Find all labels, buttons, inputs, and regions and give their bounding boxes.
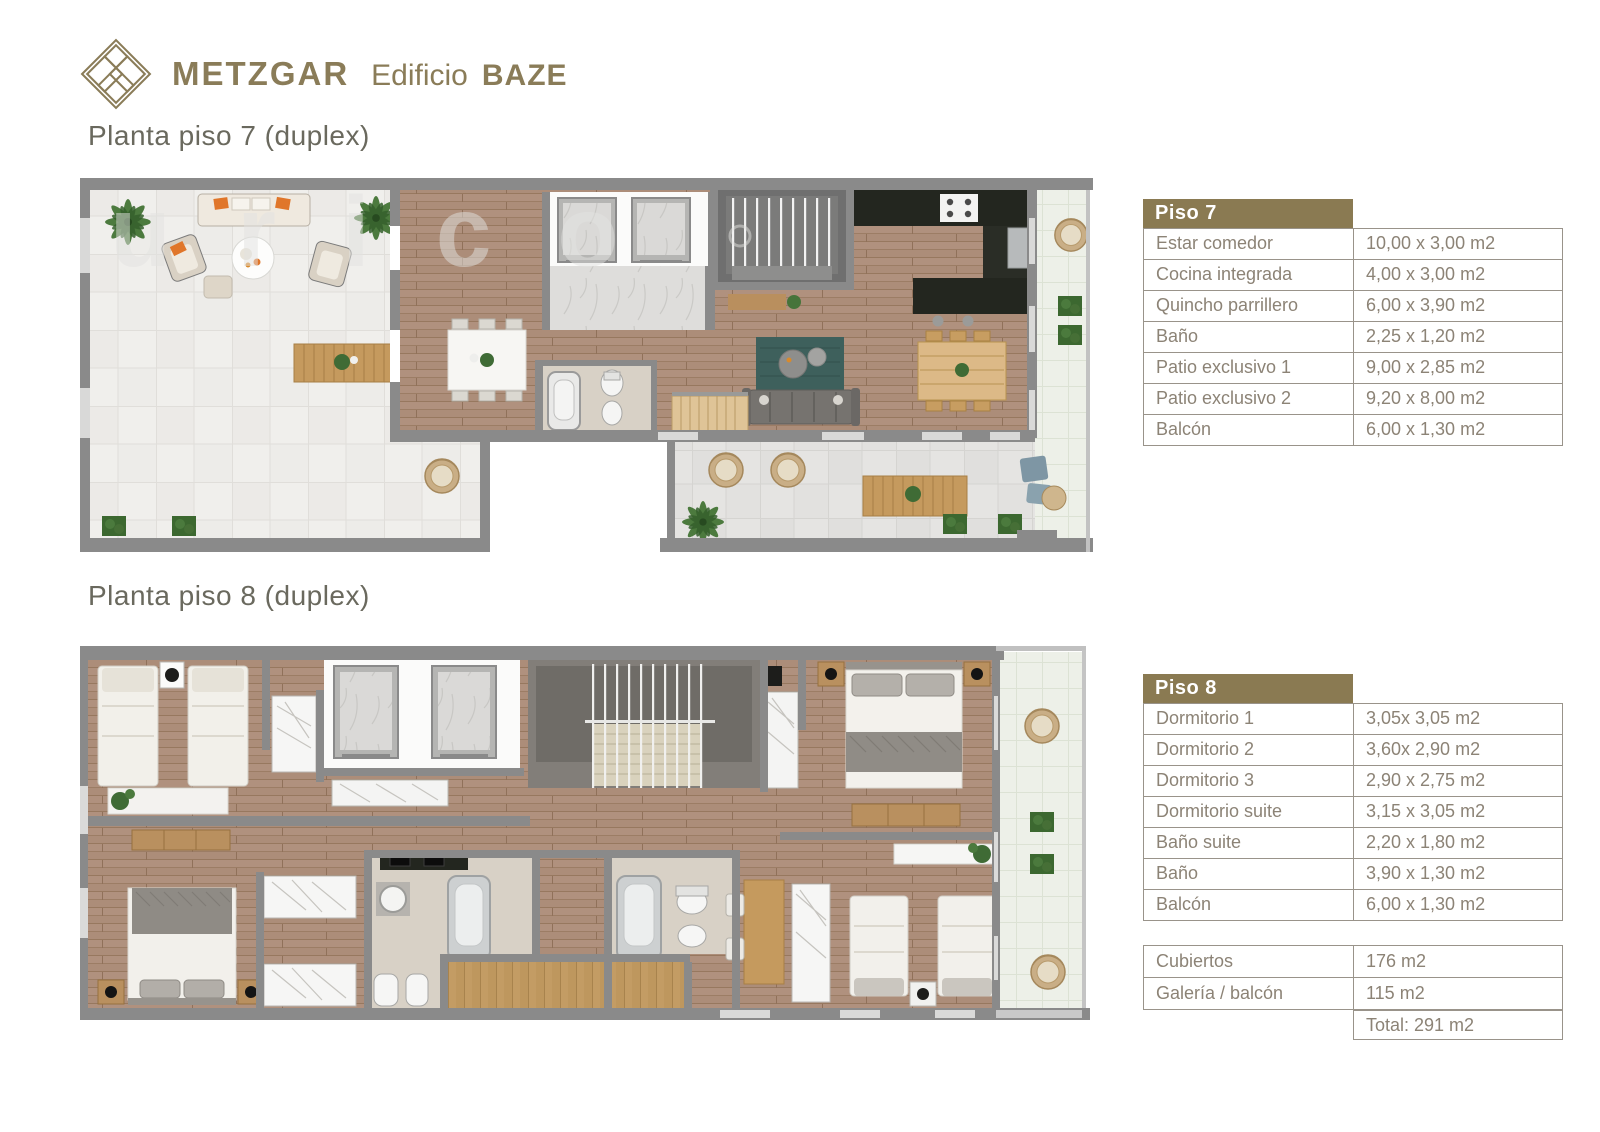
table-row: Patio exclusivo 2 9,20 x 8,00 m2 (1144, 384, 1562, 415)
summary-label: Cubiertos (1144, 946, 1354, 977)
room-label: Dormitorio suite (1144, 797, 1354, 827)
room-label: Estar comedor (1144, 229, 1354, 259)
room-size: 3,05x 3,05 m2 (1354, 704, 1562, 734)
room-size: 9,20 x 8,00 m2 (1354, 384, 1562, 414)
table-row: Baño 3,90 x 1,30 m2 (1144, 859, 1562, 890)
room-size: 3,90 x 1,30 m2 (1354, 859, 1562, 889)
closet-under-core (332, 780, 448, 806)
room-label: Dormitorio 3 (1144, 766, 1354, 796)
room-size: 3,60x 2,90 m2 (1354, 735, 1562, 765)
brochure-page: METZGAR Edificio BAZE Planta piso 7 (dup… (0, 0, 1600, 1132)
room-size: 2,20 x 1,80 m2 (1354, 828, 1562, 858)
table-row: Patio exclusivo 1 9,00 x 2,85 m2 (1144, 353, 1562, 384)
table-row: Dormitorio 3 2,90 x 2,75 m2 (1144, 766, 1562, 797)
room-size: 2,25 x 1,20 m2 (1354, 322, 1562, 352)
indoor-dining-table-white (448, 319, 526, 401)
summary-table: Cubiertos 176 m2 Galería / balcón 115 m2… (1143, 945, 1563, 1040)
table-row: Dormitorio 2 3,60x 2,90 m2 (1144, 735, 1562, 766)
plan7-heading: Planta piso 7 (duplex) (88, 120, 370, 152)
plan7-floorplan: urico (80, 178, 1093, 560)
summary-table-rows: Cubiertos 176 m2 Galería / balcón 115 m2 (1143, 945, 1563, 1010)
patio-exclusivo-1-floor (667, 436, 1035, 540)
table-row: Quincho parrillero 6,00 x 3,90 m2 (1144, 291, 1562, 322)
table-row: Dormitorio suite 3,15 x 3,05 m2 (1144, 797, 1562, 828)
metzgar-diamond-logo-icon (80, 38, 152, 110)
room-size: 3,15 x 3,05 m2 (1354, 797, 1562, 827)
bano (612, 858, 732, 960)
brand-name: METZGAR (172, 55, 349, 93)
stairwell (718, 190, 846, 288)
room-size: 6,00 x 1,30 m2 (1354, 415, 1562, 445)
hall-console (728, 294, 801, 310)
total-value: Total: 291 m2 (1353, 1010, 1563, 1040)
table-row: Balcón 6,00 x 1,30 m2 (1144, 890, 1562, 920)
table-row: Galería / balcón 115 m2 (1144, 978, 1562, 1009)
table-row: Baño suite 2,20 x 1,80 m2 (1144, 828, 1562, 859)
piso8-table-title: Piso 8 (1143, 674, 1353, 703)
room-label: Dormitorio 1 (1144, 704, 1354, 734)
room-size: 6,00 x 3,90 m2 (1354, 291, 1562, 321)
summary-label: Galería / balcón (1144, 978, 1354, 1009)
room-label: Balcón (1144, 415, 1354, 445)
console-shelf (894, 843, 994, 864)
room-label: Baño (1144, 859, 1354, 889)
patio2-wicker-chair (425, 459, 459, 493)
living-area (742, 337, 860, 426)
room-label: Patio exclusivo 1 (1144, 353, 1354, 383)
table-row: Cubiertos 176 m2 (1144, 946, 1562, 978)
table-row: Cocina integrada 4,00 x 3,00 m2 (1144, 260, 1562, 291)
room-label: Baño suite (1144, 828, 1354, 858)
table-row: Balcón 6,00 x 1,30 m2 (1144, 415, 1562, 445)
table-row: Estar comedor 10,00 x 3,00 m2 (1144, 229, 1562, 260)
room-label: Balcón (1144, 890, 1354, 920)
wardrobe-1 (272, 696, 316, 772)
bathroom (543, 364, 652, 430)
room-size: 2,90 x 2,75 m2 (1354, 766, 1562, 796)
piso8-table: Piso 8 Dormitorio 1 3,05x 3,05 m2 Dormit… (1143, 674, 1563, 921)
piso8-table-rows: Dormitorio 1 3,05x 3,05 m2 Dormitorio 2 … (1143, 703, 1563, 921)
total-row: Total: 291 m2 (1143, 1010, 1563, 1040)
patio2-wood-table (294, 344, 394, 382)
piso7-table-rows: Estar comedor 10,00 x 3,00 m2 Cocina int… (1143, 228, 1563, 446)
galeria-deck (448, 962, 684, 1008)
total-row-spacer (1143, 1010, 1353, 1040)
building-name: BAZE (482, 59, 568, 93)
room-label: Patio exclusivo 2 (1144, 384, 1354, 414)
room-label: Dormitorio 2 (1144, 735, 1354, 765)
building-prefix: Edificio (371, 59, 468, 93)
closet-hall (764, 692, 798, 788)
watermark: urico (110, 178, 750, 288)
room-label: Quincho parrillero (1144, 291, 1354, 321)
room-size: 9,00 x 2,85 m2 (1354, 353, 1562, 383)
piso7-table-title: Piso 7 (1143, 199, 1353, 228)
room-size: 4,00 x 3,00 m2 (1354, 260, 1562, 290)
table-row: Baño 2,25 x 1,20 m2 (1144, 322, 1562, 353)
indoor-dining-table-wood (918, 331, 1006, 411)
room-size: 10,00 x 3,00 m2 (1354, 229, 1562, 259)
table-row: Dormitorio 1 3,05x 3,05 m2 (1144, 704, 1562, 735)
svg-text:urico: urico (110, 178, 684, 288)
room-size: 6,00 x 1,30 m2 (1354, 890, 1562, 920)
brand-header: METZGAR Edificio BAZE (80, 38, 568, 110)
plan8-heading: Planta piso 8 (duplex) (88, 580, 370, 612)
duplex-internal-stairs (672, 392, 748, 434)
stairwell (528, 660, 782, 788)
plan8-floorplan (80, 636, 1090, 1020)
elevator-core (324, 660, 520, 772)
summary-value: 176 m2 (1354, 946, 1562, 977)
room-label: Cocina integrada (1144, 260, 1354, 290)
piso7-table: Piso 7 Estar comedor 10,00 x 3,00 m2 Coc… (1143, 199, 1563, 446)
summary-value: 115 m2 (1354, 978, 1562, 1009)
room-label: Baño (1144, 322, 1354, 352)
